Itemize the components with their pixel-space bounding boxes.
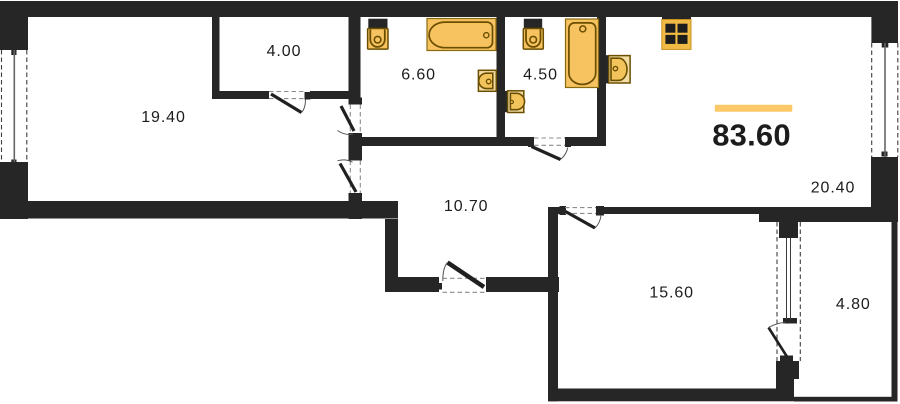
svg-text:6.60: 6.60 <box>401 66 436 83</box>
svg-text:19.40: 19.40 <box>141 109 186 126</box>
svg-text:10.70: 10.70 <box>444 198 489 215</box>
svg-text:4.80: 4.80 <box>836 296 871 313</box>
svg-text:83.60: 83.60 <box>712 118 791 153</box>
svg-text:4.50: 4.50 <box>523 66 558 83</box>
svg-text:4.00: 4.00 <box>267 43 302 60</box>
svg-text:20.40: 20.40 <box>811 180 856 197</box>
svg-text:15.60: 15.60 <box>649 285 694 302</box>
